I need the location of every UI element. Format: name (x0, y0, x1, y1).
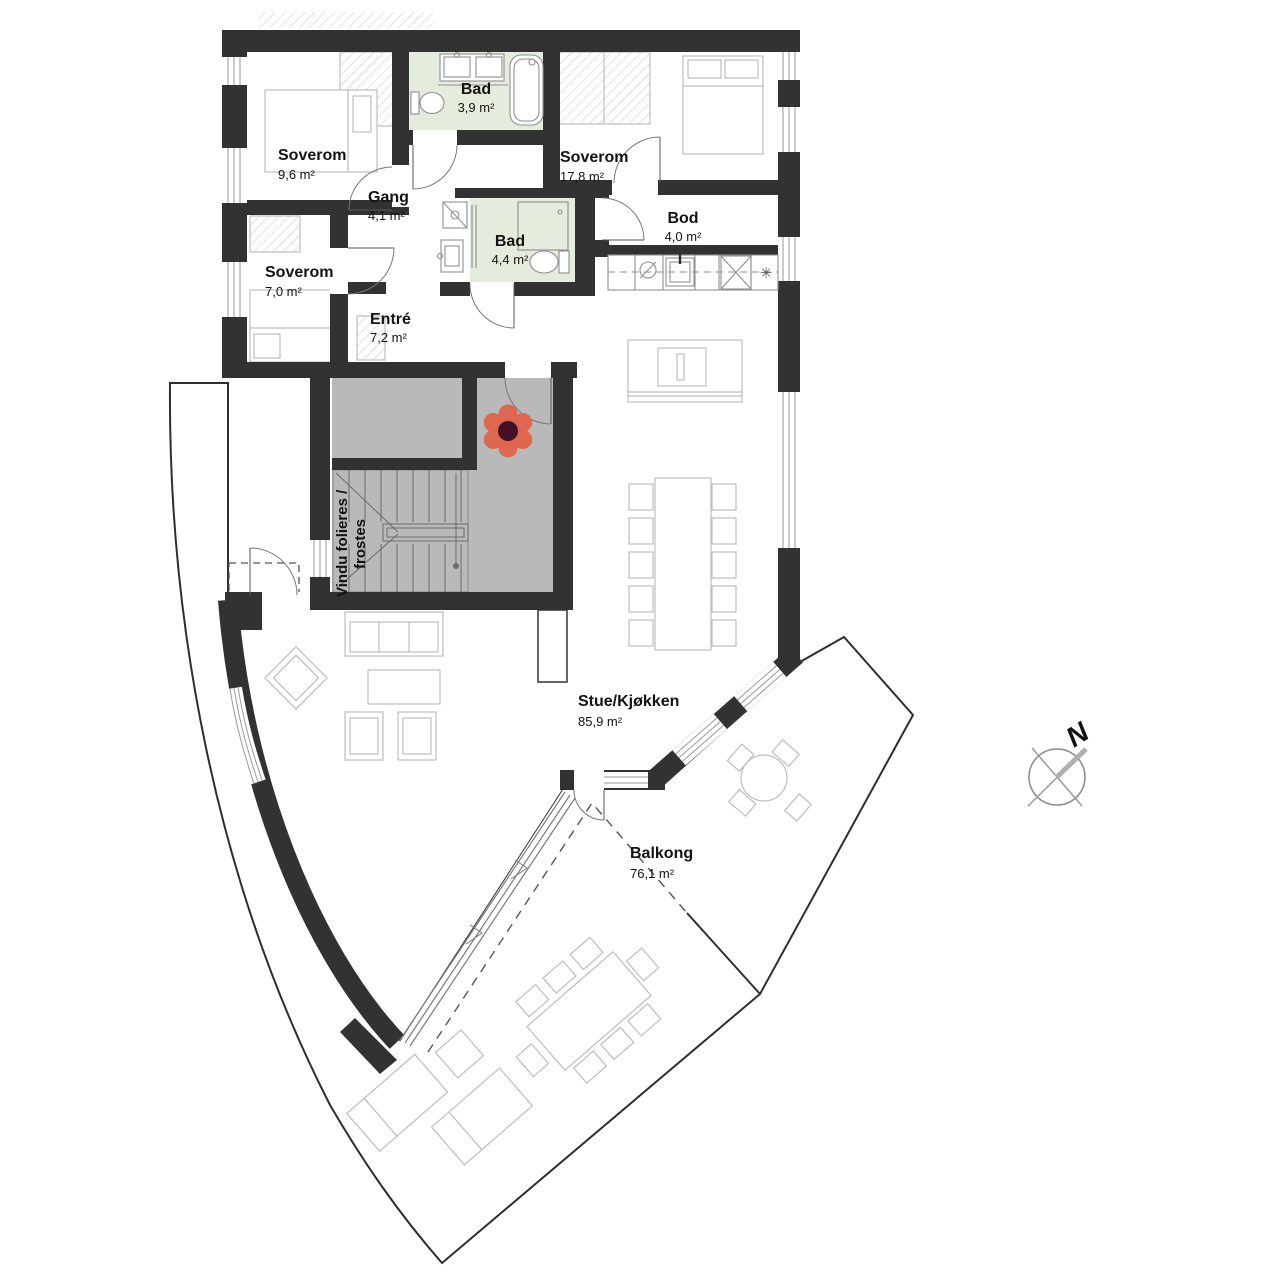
room-label-soverom-3: Soverom (265, 264, 333, 281)
wall-top (222, 30, 800, 52)
room-area-entre: 7,2 m² (370, 330, 408, 345)
freezer-snowflake-icon: ✳ (760, 265, 773, 282)
kitchen-counter (608, 252, 778, 290)
kitchen-island (628, 340, 742, 402)
room-label-balkong: Balkong (630, 845, 693, 862)
room-area-soverom-1: 9,6 m² (278, 167, 316, 182)
room-label-stue-kjokken: Stue/Kjøkken (578, 693, 679, 710)
room-area-soverom-3: 7,0 m² (265, 284, 303, 299)
room-area-bad-2: 4,4 m² (492, 252, 530, 267)
room-label-bad-2: Bad (495, 233, 525, 250)
neighbor-hatch (258, 12, 433, 28)
room-label-bod: Bod (667, 210, 698, 227)
floor-plan-page: ✳ Soverom 9,6 m² Bad 3,9 m² Soverom 17,8… (0, 0, 1275, 1280)
room-label-bad-1: Bad (461, 81, 491, 98)
bed-soverom-2 (683, 56, 763, 154)
wardrobe-soverom-3 (250, 216, 300, 252)
compass: N (1028, 716, 1095, 806)
room-label-soverom-2: Soverom (560, 149, 628, 166)
room-area-balkong: 76,1 m² (630, 866, 675, 881)
room-area-bad-1: 3,9 m² (458, 100, 496, 115)
room-area-bod: 4,0 m² (665, 229, 703, 244)
room-area-gang: 4,1 m² (368, 208, 406, 223)
room-label-gang: Gang (368, 189, 409, 206)
window-note-line2: frostes (352, 519, 369, 569)
floor-plan-svg: ✳ Soverom 9,6 m² Bad 3,9 m² Soverom 17,8… (0, 0, 1275, 1280)
elevator-shaft (332, 378, 462, 458)
room-area-soverom-2: 17,8 m² (560, 169, 605, 184)
bed-soverom-3 (250, 290, 332, 362)
compass-north-label: N (1060, 716, 1094, 753)
open-door-leaf (538, 610, 567, 682)
room-label-soverom-1: Soverom (278, 147, 346, 164)
window-note-line1: Vindu folieres / (334, 489, 351, 597)
room-label-entre: Entré (370, 311, 411, 328)
room-area-stue-kjokken: 85,9 m² (578, 714, 623, 729)
flower-center (498, 421, 518, 441)
